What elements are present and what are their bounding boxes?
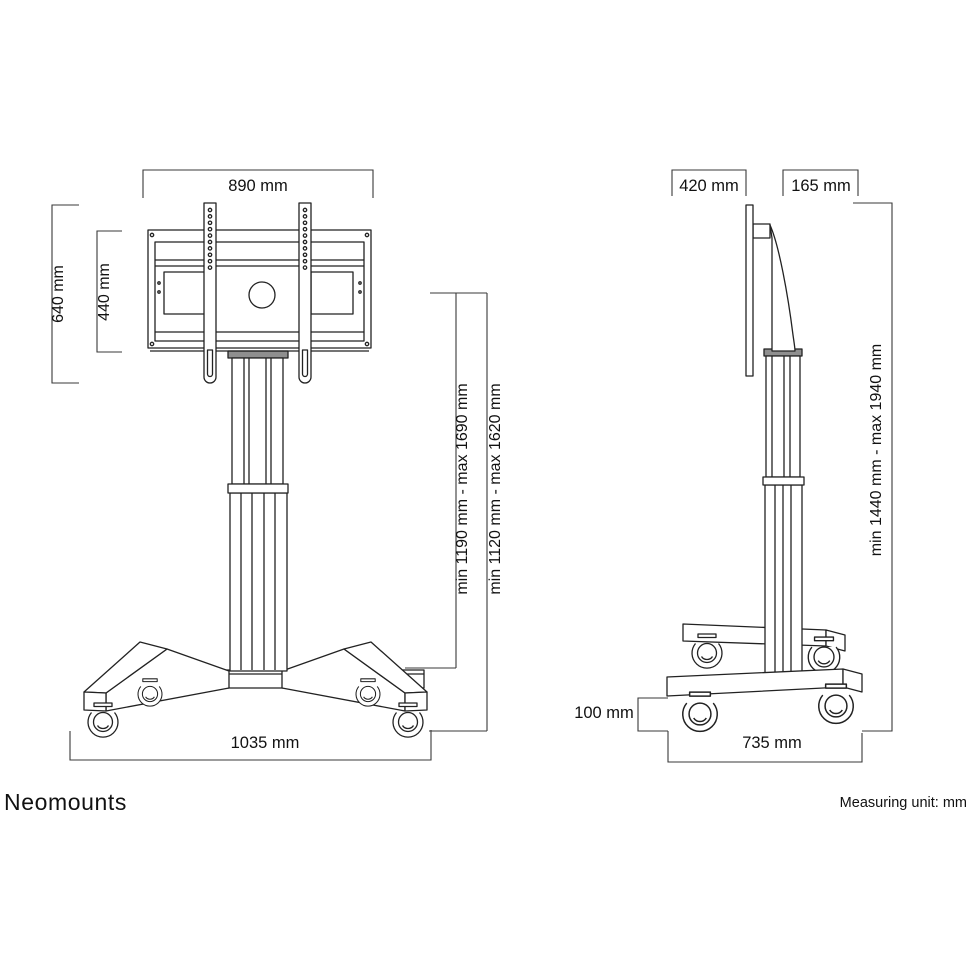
screen-panel-side bbox=[746, 205, 753, 376]
dim-label-890: 890 mm bbox=[228, 177, 288, 195]
lift-column-side bbox=[763, 349, 804, 674]
dim-bracket-height: 640 mm bbox=[50, 205, 79, 383]
dim-screen-depth: 420 mm bbox=[672, 170, 746, 196]
base-leg-right bbox=[282, 642, 427, 711]
lift-column-front bbox=[228, 351, 288, 671]
dim-label-165: 165 mm bbox=[791, 177, 851, 195]
dim-label-1120-1620: min 1120 mm - max 1620 mm bbox=[487, 383, 504, 594]
dim-base-width: 1035 mm bbox=[70, 730, 431, 760]
dim-total-height-range: min 1440 mm - max 1940 mm bbox=[853, 203, 892, 731]
tv-mount-plate bbox=[148, 230, 371, 351]
dim-label-100: 100 mm bbox=[574, 704, 634, 722]
dim-column-depth: 165 mm bbox=[783, 170, 858, 196]
technical-drawing-svg: 890 mm 640 mm 440 mm min 1190 mm - max 1… bbox=[0, 0, 973, 973]
caster-front-right-side-view bbox=[819, 684, 854, 723]
brand-logo-text: Neomounts bbox=[4, 789, 127, 815]
measuring-unit-label: Measuring unit: mm bbox=[840, 795, 967, 811]
dim-label-640: 640 mm bbox=[50, 265, 67, 323]
front-view-drawing: 890 mm 640 mm 440 mm min 1190 mm - max 1… bbox=[50, 170, 504, 760]
dim-plate-height: 440 mm bbox=[96, 231, 122, 352]
dim-base-depth: 735 mm bbox=[668, 731, 862, 762]
side-view-drawing: 420 mm 165 mm min 1440 mm - max 1940 mm … bbox=[574, 170, 892, 762]
caster-front-left-side-view bbox=[683, 692, 718, 731]
dim-base-height: 100 mm bbox=[574, 698, 668, 731]
dim-label-420: 420 mm bbox=[679, 177, 739, 195]
dim-label-440: 440 mm bbox=[96, 263, 113, 321]
dim-label-1440-1940: min 1440 mm - max 1940 mm bbox=[868, 344, 885, 557]
dim-height-ranges-front: min 1190 mm - max 1690 mm min 1120 mm - … bbox=[405, 293, 504, 731]
dim-label-1190-1690: min 1190 mm - max 1690 mm bbox=[454, 383, 471, 594]
dim-label-1035: 1035 mm bbox=[231, 734, 300, 752]
drawing-canvas: 890 mm 640 mm 440 mm min 1190 mm - max 1… bbox=[0, 0, 973, 973]
dim-plate-width: 890 mm bbox=[143, 170, 373, 198]
screen-bracket-side bbox=[753, 224, 795, 351]
dim-label-735: 735 mm bbox=[742, 734, 802, 752]
